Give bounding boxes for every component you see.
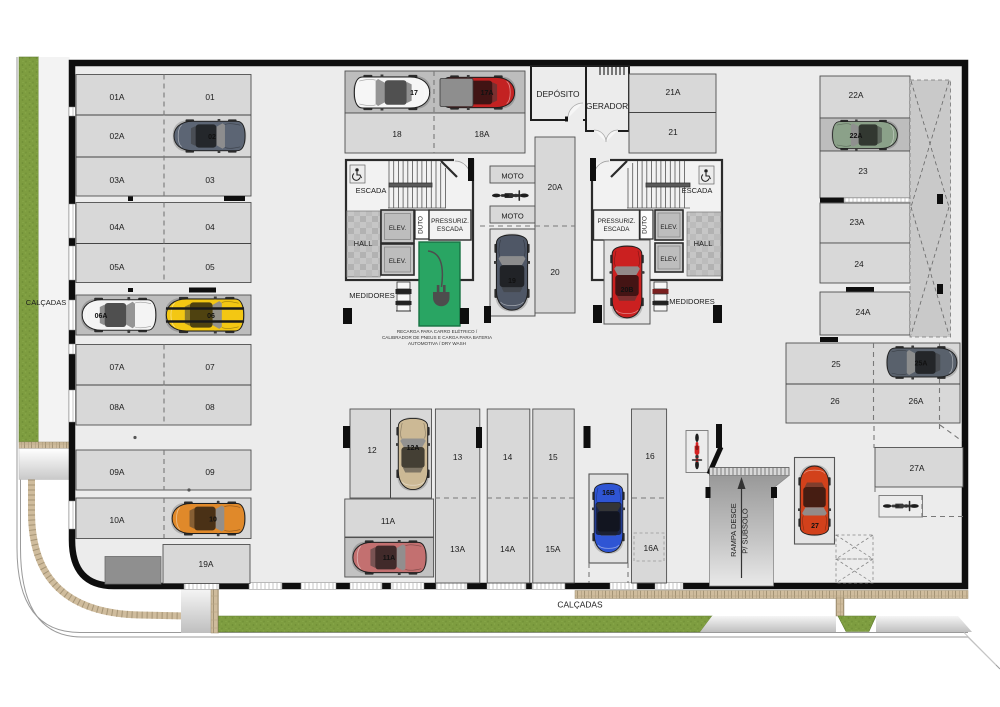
- svg-text:16: 16: [645, 451, 655, 461]
- svg-text:ESCADA: ESCADA: [356, 186, 387, 195]
- svg-text:RECARGA PARA CARRO ELÉTRICO /: RECARGA PARA CARRO ELÉTRICO /: [397, 328, 478, 334]
- svg-text:02: 02: [208, 134, 216, 141]
- svg-text:06A: 06A: [95, 313, 108, 320]
- svg-text:MEDIDORES: MEDIDORES: [349, 291, 394, 300]
- svg-text:01A: 01A: [110, 92, 125, 102]
- svg-text:22A: 22A: [849, 90, 864, 100]
- svg-text:18: 18: [392, 129, 402, 139]
- svg-text:04: 04: [205, 222, 215, 232]
- svg-text:10: 10: [209, 517, 217, 524]
- svg-text:16A: 16A: [644, 543, 659, 553]
- svg-text:21A: 21A: [666, 87, 681, 97]
- svg-text:14A: 14A: [500, 544, 515, 554]
- svg-text:13A: 13A: [450, 544, 465, 554]
- svg-text:MOTO: MOTO: [501, 172, 524, 181]
- svg-text:04A: 04A: [110, 222, 125, 232]
- svg-text:17A: 17A: [481, 90, 494, 97]
- svg-text:07A: 07A: [110, 362, 125, 372]
- svg-text:07: 07: [205, 362, 215, 372]
- svg-text:ELEV.: ELEV.: [389, 225, 407, 232]
- svg-text:03A: 03A: [110, 175, 125, 185]
- svg-text:09A: 09A: [110, 467, 125, 477]
- svg-text:12A: 12A: [407, 445, 420, 452]
- svg-text:25A: 25A: [915, 361, 928, 368]
- svg-text:26A: 26A: [909, 396, 924, 406]
- svg-text:GERADOR: GERADOR: [586, 101, 628, 111]
- svg-text:08A: 08A: [110, 402, 125, 412]
- svg-text:11A: 11A: [383, 555, 395, 562]
- svg-text:15: 15: [548, 452, 558, 462]
- svg-text:16B: 16B: [602, 490, 615, 497]
- svg-text:27: 27: [811, 523, 819, 530]
- svg-text:03: 03: [205, 175, 215, 185]
- svg-text:ESCADA: ESCADA: [682, 186, 713, 195]
- svg-text:HALL: HALL: [694, 239, 713, 248]
- svg-text:PRESSURIZ.: PRESSURIZ.: [431, 218, 469, 225]
- svg-text:ELEV.: ELEV.: [660, 256, 678, 263]
- svg-text:05A: 05A: [110, 262, 125, 272]
- svg-text:23: 23: [858, 166, 868, 176]
- svg-text:24: 24: [854, 259, 864, 269]
- svg-text:19A: 19A: [199, 559, 214, 569]
- svg-text:06: 06: [207, 313, 215, 320]
- svg-text:15A: 15A: [546, 544, 561, 554]
- svg-text:19: 19: [508, 278, 516, 285]
- svg-text:08: 08: [205, 402, 215, 412]
- svg-text:11A: 11A: [381, 516, 396, 526]
- svg-text:CALÇADAS: CALÇADAS: [557, 600, 603, 610]
- svg-text:09: 09: [205, 467, 215, 477]
- svg-text:21: 21: [668, 127, 678, 137]
- svg-text:AUTOMOTIVA / DRY WASH: AUTOMOTIVA / DRY WASH: [408, 341, 466, 346]
- svg-text:02A: 02A: [110, 131, 125, 141]
- svg-text:P/ SUBSOLO: P/ SUBSOLO: [741, 508, 750, 554]
- svg-text:MEDIDORES: MEDIDORES: [669, 297, 714, 306]
- svg-text:HALL: HALL: [354, 239, 373, 248]
- svg-text:14: 14: [503, 452, 513, 462]
- svg-text:22A: 22A: [850, 133, 863, 140]
- svg-text:20: 20: [550, 267, 560, 277]
- svg-text:24A: 24A: [856, 307, 871, 317]
- svg-text:25: 25: [831, 359, 841, 369]
- svg-text:ELEV.: ELEV.: [660, 224, 678, 231]
- svg-text:PRESSURIZ.: PRESSURIZ.: [598, 218, 636, 225]
- svg-text:10A: 10A: [110, 515, 125, 525]
- svg-text:ESCADA: ESCADA: [437, 226, 464, 233]
- svg-text:18A: 18A: [475, 129, 490, 139]
- svg-text:RAMPA DESCE: RAMPA DESCE: [729, 503, 738, 557]
- svg-text:DEPÓSITO: DEPÓSITO: [536, 89, 580, 99]
- svg-text:01: 01: [205, 92, 215, 102]
- svg-text:13: 13: [453, 452, 463, 462]
- svg-text:DUTO: DUTO: [418, 216, 425, 234]
- svg-text:ESCADA: ESCADA: [604, 226, 631, 233]
- svg-text:DUTO: DUTO: [642, 216, 649, 234]
- svg-text:CALIBRADOR DE PNEUS E CARGA PA: CALIBRADOR DE PNEUS E CARGA PARA BATERIA: [382, 335, 493, 340]
- svg-text:23A: 23A: [850, 217, 865, 227]
- svg-text:MOTO: MOTO: [501, 212, 524, 221]
- svg-text:20B: 20B: [621, 287, 634, 294]
- svg-text:27A: 27A: [910, 463, 925, 473]
- svg-text:ELEV.: ELEV.: [389, 258, 407, 265]
- svg-text:05: 05: [205, 262, 215, 272]
- svg-text:17: 17: [410, 90, 418, 97]
- svg-text:CALÇADAS: CALÇADAS: [26, 298, 66, 307]
- svg-text:26: 26: [830, 396, 840, 406]
- svg-text:20A: 20A: [548, 182, 563, 192]
- svg-text:12: 12: [367, 445, 377, 455]
